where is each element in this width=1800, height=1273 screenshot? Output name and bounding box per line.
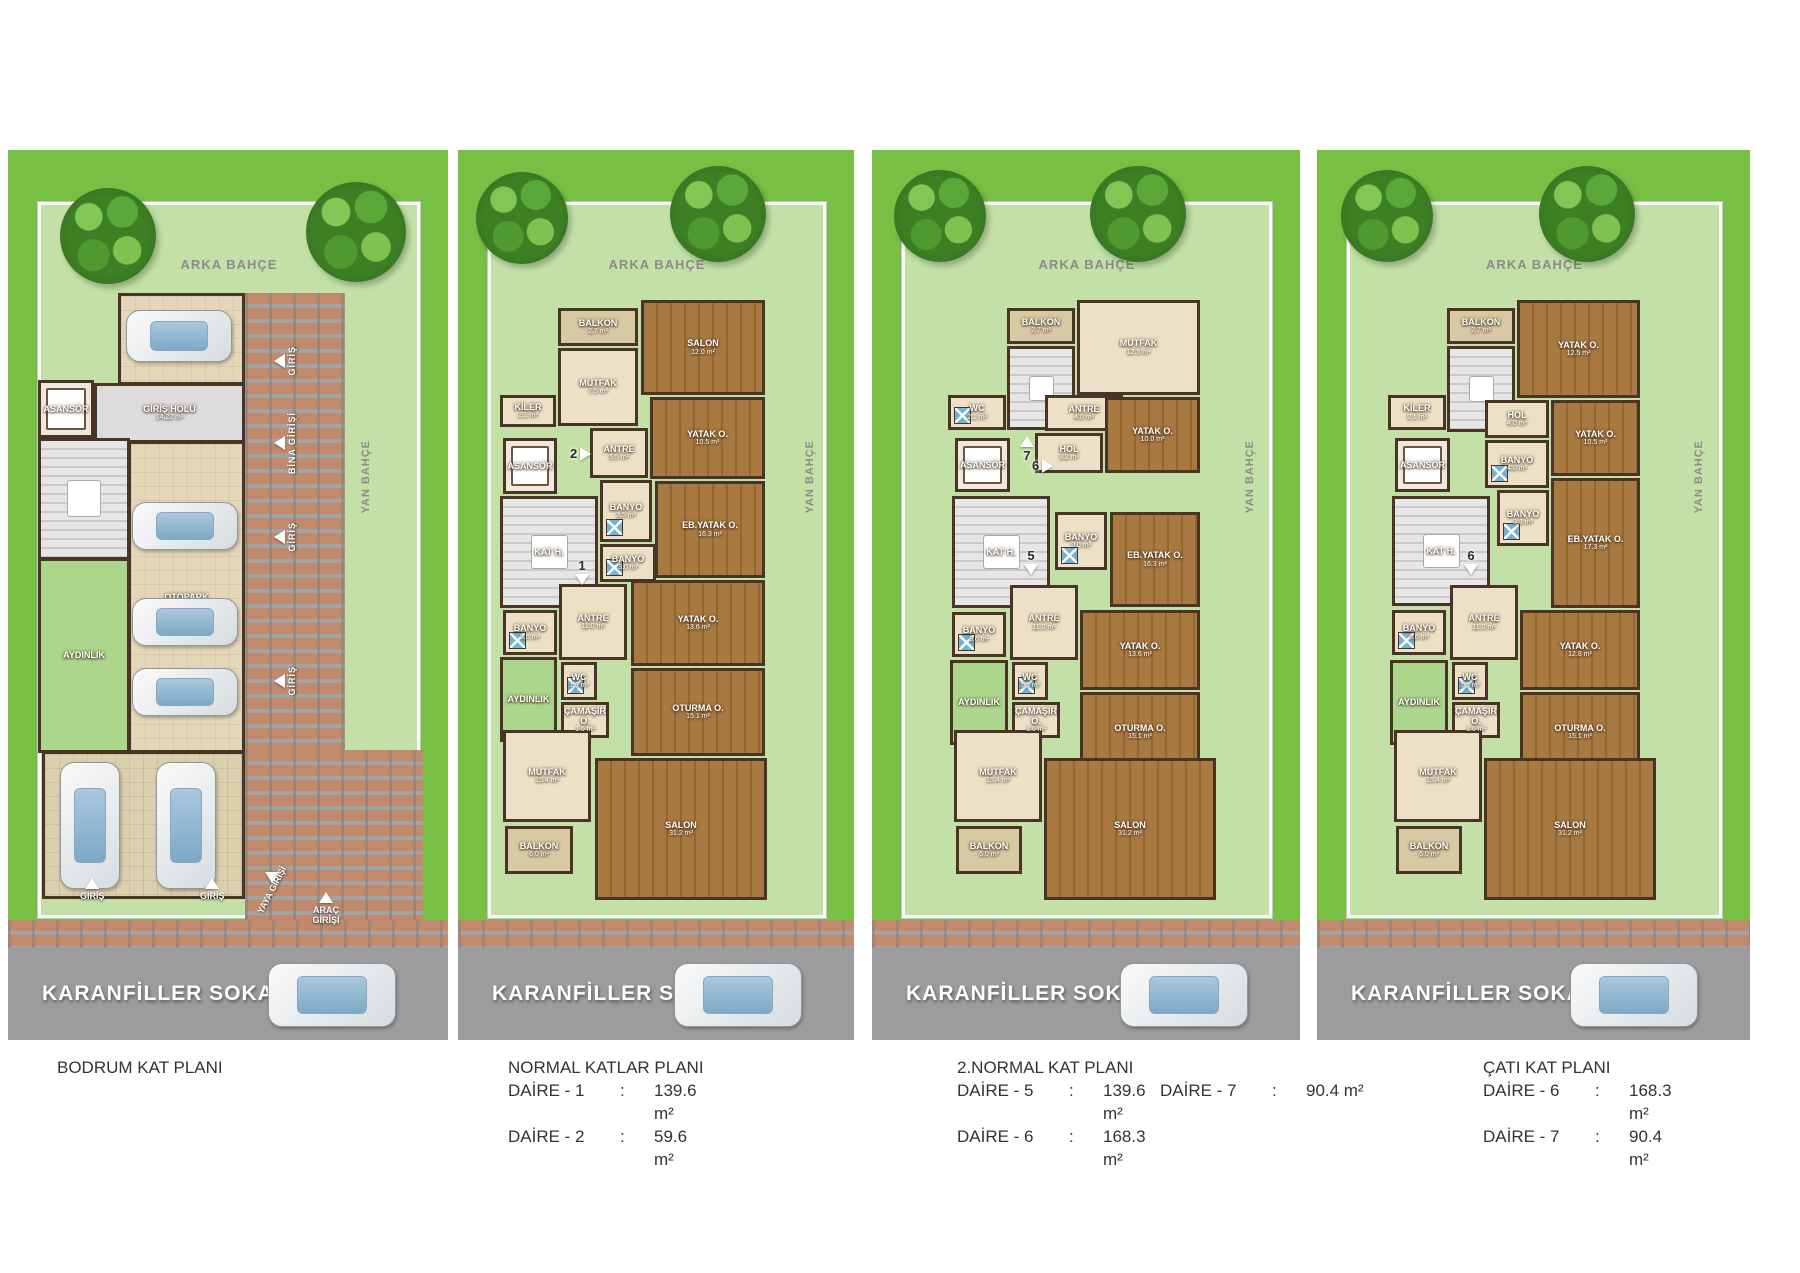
- room-ki-ler: KİLER2.1 m²: [1388, 395, 1446, 430]
- room-label: KİLER2.1 m²: [503, 398, 553, 424]
- apartment-number-label: 2: [570, 446, 577, 461]
- room-label: BALKON2.7 m²: [561, 311, 635, 343]
- street-name-label: KARANFİLLER SOKAK: [906, 982, 1154, 1006]
- marker-yan-bah-e: YAN BAHÇE: [804, 440, 816, 513]
- marker-gi-ri: GİRİŞ: [274, 522, 297, 552]
- room-label: ÇAMAŞIR O.1.6 m²: [564, 705, 606, 735]
- room-label: EB.YATAK O.17.3 m²: [1554, 481, 1637, 605]
- colon: :: [1272, 1079, 1306, 1102]
- room-banyo: BANYO3.3 m²: [1497, 490, 1549, 546]
- room-label: YATAK O.13.6 m²: [1083, 613, 1197, 687]
- apartment-area: 139.6 m²: [1103, 1079, 1152, 1125]
- back-garden-label: ARKA BAHÇE: [905, 257, 1269, 272]
- room-mutfak: MUTFAK7.5 m²: [558, 348, 638, 426]
- apartment-name: DAİRE - 6: [957, 1125, 1069, 1171]
- room-antre: ANTRE5.5 m²: [590, 428, 648, 478]
- room-label: BANYO3.5 m²: [603, 483, 649, 539]
- brick-walkway: [872, 920, 1300, 948]
- room-aydinlik: AYDINLIK: [38, 558, 130, 753]
- room-mutfak: MUTFAK12.5 m²: [1077, 300, 1200, 395]
- room-balkon: BALKON6.0 m²: [1396, 826, 1462, 874]
- apartment-number-label: 5: [1027, 548, 1034, 563]
- marker-label: YAN BAHÇE: [1244, 440, 1256, 513]
- room-wc: WC1.5 m²: [1012, 662, 1048, 700]
- room-label: KİLER2.1 m²: [1391, 398, 1443, 427]
- caption-area-row: DAİRE - 1:139.6 m²: [508, 1079, 703, 1125]
- room-label: ASANSÖR: [41, 383, 91, 435]
- caption-title: BODRUM KAT PLANI: [57, 1056, 223, 1079]
- room-label: AYDINLIK: [41, 561, 127, 750]
- tree: [60, 188, 156, 284]
- tree: [476, 172, 568, 264]
- room-label: WC2.1 m²: [951, 398, 1003, 427]
- apartment-number-label: 7: [1023, 448, 1030, 463]
- room-wc: WC2.1 m²: [948, 395, 1006, 430]
- apartment-name: DAİRE - 5: [957, 1079, 1069, 1125]
- caption-area-row: DAİRE - 7:90.4 m²: [1483, 1125, 1678, 1171]
- tree: [1090, 166, 1186, 262]
- room-oturma-o: OTURMA O.15.1 m²: [1080, 692, 1200, 772]
- floor-plan-cati-kat: ARKA BAHÇEBALKON2.7 m²YATAK O.12.5 m²KİL…: [1317, 150, 1750, 1040]
- caption-areas: DAİRE - 1:139.6 m²DAİRE - 2:59.6 m²: [508, 1079, 704, 1171]
- tree: [894, 170, 986, 262]
- caption-column-2: DAİRE - 7:90.4 m²: [1160, 1079, 1364, 1102]
- room-label: YATAK O.12.8 m²: [1523, 613, 1637, 687]
- room-balkon: BALKON6.0 m²: [956, 826, 1022, 874]
- left-arrow-icon: [274, 530, 285, 544]
- apartment-area: 59.6 m²: [654, 1125, 703, 1171]
- room-label: MUTFAK7.5 m²: [561, 351, 635, 423]
- room-wc: WC1.9 m²: [561, 662, 597, 700]
- room-label: ANTRE11.0 m²: [562, 587, 624, 657]
- street-band: KARANFİLLER SOKAK: [458, 948, 854, 1040]
- room-yatak-o: YATAK O.13.6 m²: [631, 580, 765, 666]
- car-cabin: [170, 788, 203, 863]
- room-yatak-o: YATAK O.10.5 m²: [650, 397, 765, 479]
- room-label: ÇAMAŞIR O.1.6 m²: [1455, 705, 1497, 735]
- caption-title: 2.NORMAL KAT PLANI: [957, 1056, 1364, 1079]
- room-label: WC1.5 m²: [1015, 665, 1045, 697]
- marker-yaya-gi-ri-i: YAYA GİRİŞİ: [246, 872, 298, 895]
- room-salon: SALON31.2 m²: [595, 758, 767, 900]
- up-arrow-icon: [85, 878, 99, 889]
- caption-area-row: DAİRE - 6:168.3 m²: [1483, 1079, 1678, 1125]
- room-banyo: BANYO3.6 m²: [1392, 610, 1446, 655]
- apartment-name: DAİRE - 6: [1483, 1079, 1595, 1125]
- room-ki-ler: KİLER2.1 m²: [500, 395, 556, 427]
- caption-area-row: DAİRE - 2:59.6 m²: [508, 1125, 703, 1171]
- apartment-name: DAİRE - 1: [508, 1079, 620, 1125]
- floor-plan-ikinci-normal-kat: ARKA BAHÇEBALKON2.7 m²MUTFAK12.5 m²WC2.1…: [872, 150, 1300, 1040]
- marker-label: GİRİŞ: [287, 522, 297, 552]
- room-label: ASANSÖR: [958, 441, 1007, 489]
- room-gi-ri-hol: GİRİŞ HOLÜ14.22 m²: [94, 383, 245, 443]
- room-label: YATAK O.10.5 m²: [653, 400, 762, 476]
- tree: [1341, 170, 1433, 262]
- room-oturma-o: OTURMA O.15.1 m²: [1520, 692, 1640, 772]
- marker-gi-ri: GİRİŞ: [274, 666, 297, 696]
- room-asans-r: ASANSÖR: [1395, 438, 1450, 492]
- room-label: MUTFAK12.5 m²: [1080, 303, 1197, 392]
- colon: :: [1069, 1125, 1103, 1171]
- room-wc: WC1.5 m²: [1452, 662, 1488, 700]
- room-label: SALON31.2 m²: [1047, 761, 1213, 897]
- caption-title: ÇATI KAT PLANI: [1483, 1056, 1678, 1079]
- colon: :: [1595, 1125, 1629, 1171]
- caption-areas: DAİRE - 6:168.3 m²DAİRE - 7:90.4 m²: [1483, 1079, 1678, 1171]
- room-mutfak: MUTFAK15.4 m²: [503, 730, 591, 822]
- room-label: ANTRE11.0 m²: [1453, 588, 1515, 657]
- apartment-number-2: 2: [570, 446, 591, 461]
- car-top-view: [132, 668, 238, 716]
- apartment-number-5: 5: [1024, 548, 1038, 575]
- car-cabin: [156, 678, 214, 706]
- room-label: WC1.9 m²: [564, 665, 594, 697]
- room-label: BANYO3.6 m²: [955, 615, 1003, 654]
- room-label: AYDINLIK: [953, 663, 1005, 742]
- caption-area-row: DAİRE - 7:90.4 m²: [1160, 1079, 1364, 1102]
- caption-area-row: DAİRE - 6:168.3 m²: [957, 1125, 1152, 1171]
- marker-label: YAN BAHÇE: [360, 440, 372, 513]
- room-balkon: BALKON2.7 m²: [1007, 308, 1075, 344]
- car-top-view: [132, 502, 238, 550]
- up-arrow-icon: [1020, 436, 1034, 447]
- room-asans-r: ASANSÖR: [503, 438, 557, 494]
- caption-normal-katlar: NORMAL KATLAR PLANIDAİRE - 1:139.6 m²DAİ…: [508, 1056, 704, 1171]
- room-label: BANYO3.0 m²: [1058, 515, 1104, 567]
- room-label: BALKON2.7 m²: [1450, 311, 1512, 341]
- marker-label: GİRİŞ: [287, 346, 297, 376]
- tree: [1539, 166, 1635, 262]
- colon: :: [1595, 1079, 1629, 1125]
- room-hol: HOL4.0 m²: [1485, 400, 1549, 438]
- room-label: MUTFAK15.4 m²: [957, 733, 1039, 819]
- apartment-area: 90.4 m²: [1306, 1079, 1364, 1102]
- room-label: ÇAMAŞIR O.1.6 m²: [1015, 705, 1057, 735]
- room-label: AYDINLIK: [1393, 663, 1445, 742]
- apartment-area: 139.6 m²: [654, 1079, 703, 1125]
- car-top-view: [60, 762, 120, 889]
- room-label: ANTRE5.5 m²: [593, 431, 645, 475]
- apartment-number-6: 6: [1464, 548, 1478, 575]
- room-asans-r: ASANSÖR: [955, 438, 1010, 492]
- room-aydinlik: AYDINLIK: [500, 657, 557, 742]
- apartment-area: 90.4 m²: [1629, 1125, 1678, 1171]
- car-top-view: [156, 762, 216, 889]
- room-label: BANYO4.0 m²: [1488, 443, 1546, 485]
- street-band: KARANFİLLER SOKAK: [1317, 948, 1750, 1040]
- car-top-view: [1570, 963, 1698, 1027]
- marker-bi-na-gi-ri-i: BİNA GİRİŞİ: [274, 412, 297, 474]
- room-label: MUTFAK15.4 m²: [1397, 733, 1479, 819]
- left-arrow-icon: [274, 354, 285, 368]
- caption-column-1: DAİRE - 1:139.6 m²DAİRE - 2:59.6 m²: [508, 1079, 703, 1171]
- right-arrow-icon: [1042, 459, 1053, 473]
- room-yatak-o: YATAK O.13.6 m²: [1080, 610, 1200, 690]
- room-eb-yatak-o: EB.YATAK O.16.3 m²: [1110, 512, 1200, 607]
- car-cabin: [156, 608, 214, 636]
- room-antre: ANTRE11.0 m²: [559, 584, 627, 660]
- room-label: MUTFAK15.4 m²: [506, 733, 588, 819]
- apartment-name: DAİRE - 7: [1483, 1125, 1595, 1171]
- street-band: KARANFİLLER SOKAK: [872, 948, 1300, 1040]
- apartment-area: 168.3 m²: [1629, 1079, 1678, 1125]
- left-arrow-icon: [274, 436, 285, 450]
- marker-gi-ri: GİRİŞ: [200, 878, 225, 901]
- room-label: BALKON6.0 m²: [1399, 829, 1459, 871]
- room-eb-yatak-o: EB.YATAK O.16.3 m²: [655, 481, 765, 578]
- room-antre: ANTRE11.0 m²: [1010, 585, 1078, 660]
- right-arrow-icon: [580, 447, 591, 461]
- room-label: SALON31.2 m²: [598, 761, 764, 897]
- car-top-view: [126, 310, 232, 362]
- colon: :: [620, 1125, 654, 1171]
- car-cabin: [703, 976, 774, 1013]
- back-garden-label: ARKA BAHÇE: [1350, 257, 1719, 272]
- room-eb-yatak-o: EB.YATAK O.17.3 m²: [1551, 478, 1640, 608]
- room-mutfak: MUTFAK15.4 m²: [1394, 730, 1482, 822]
- room-label: GİRİŞ HOLÜ14.22 m²: [97, 386, 242, 440]
- caption-cati-kat: ÇATI KAT PLANIDAİRE - 6:168.3 m²DAİRE - …: [1483, 1056, 1678, 1171]
- room-banyo: BANYO3.5 m²: [600, 480, 652, 542]
- marker-label: BİNA GİRİŞİ: [287, 412, 297, 474]
- tree: [306, 182, 406, 282]
- apartment-name: DAİRE - 7: [1160, 1079, 1272, 1102]
- room-label: BANYO3.0 m²: [603, 547, 653, 579]
- down-arrow-icon: [1024, 564, 1038, 575]
- room-label: OTURMA O.15.1 m²: [1083, 695, 1197, 769]
- marker-label: GİRİŞ: [200, 891, 225, 901]
- car-top-view: [674, 963, 802, 1027]
- apartment-number-label: 1: [578, 558, 585, 573]
- car-top-view: [1120, 963, 1248, 1027]
- room-label: BANYO3.6 m²: [1395, 613, 1443, 652]
- car-cabin: [1149, 976, 1220, 1013]
- room-asans-r: ASANSÖR: [38, 380, 94, 438]
- room-label: YATAK O.10.0 m²: [1108, 400, 1197, 470]
- marker-yan-bah-e: YAN BAHÇE: [360, 440, 372, 513]
- marker-yan-bah-e: YAN BAHÇE: [1693, 440, 1705, 513]
- room-label: BALKON6.0 m²: [959, 829, 1019, 871]
- room-label: BALKON2.7 m²: [1010, 311, 1072, 341]
- marker-label: YAN BAHÇE: [804, 440, 816, 513]
- room-label: AYDINLIK: [503, 660, 554, 739]
- marker-gi-ri: GİRİŞ: [274, 346, 297, 376]
- brick-walkway: [458, 920, 854, 948]
- caption-ikinci-normal-kat: 2.NORMAL KAT PLANIDAİRE - 5:139.6 m²DAİR…: [957, 1056, 1364, 1171]
- apartment-number-6: 6: [1032, 458, 1053, 473]
- room-banyo: BANYO3.6 m²: [503, 610, 557, 655]
- apartment-number-label: 6: [1032, 458, 1039, 473]
- car-cabin: [156, 512, 214, 540]
- room-salon: SALON31.2 m²: [1484, 758, 1656, 900]
- brick-walkway: [1317, 920, 1750, 948]
- room-oturma-o: OTURMA O.15.1 m²: [631, 668, 765, 756]
- caption-area-row: DAİRE - 5:139.6 m²: [957, 1079, 1152, 1125]
- left-arrow-icon: [274, 674, 285, 688]
- apartment-name: DAİRE - 2: [508, 1125, 620, 1171]
- room-balkon: BALKON6.0 m²: [505, 826, 573, 874]
- marker-label: GİRİŞ: [80, 891, 105, 901]
- room-balkon: BALKON2.7 m²: [1447, 308, 1515, 344]
- room-label: SALON12.0 m²: [644, 303, 762, 392]
- marker-label: ARAÇ GİRİŞİ: [306, 905, 346, 925]
- up-arrow-icon: [205, 878, 219, 889]
- car-cabin: [297, 976, 368, 1013]
- room-salon: SALON31.2 m²: [1044, 758, 1216, 900]
- room-banyo: BANYO3.0 m²: [1055, 512, 1107, 570]
- marker-yan-bah-e: YAN BAHÇE: [1244, 440, 1256, 513]
- room-yatak-o: YATAK O.10.0 m²: [1105, 397, 1200, 473]
- car-top-view: [268, 963, 396, 1027]
- room-balkon: BALKON2.7 m²: [558, 308, 638, 346]
- room-label: BANYO3.6 m²: [506, 613, 554, 652]
- marker-label: YAN BAHÇE: [1693, 440, 1705, 513]
- caption-column-1: DAİRE - 6:168.3 m²DAİRE - 7:90.4 m²: [1483, 1079, 1678, 1171]
- car-cabin: [150, 321, 208, 351]
- marker-gi-ri: GİRİŞ: [80, 878, 105, 901]
- car-top-view: [132, 598, 238, 646]
- tree: [670, 166, 766, 262]
- room-label: WC1.5 m²: [1455, 665, 1485, 697]
- room-banyo: BANYO3.0 m²: [600, 544, 656, 582]
- room-label: YATAK O.12.5 m²: [1520, 303, 1637, 395]
- down-arrow-icon: [1464, 564, 1478, 575]
- apartment-number-label: 6: [1467, 548, 1474, 563]
- down-arrow-icon: [575, 574, 589, 585]
- colon: :: [1069, 1079, 1103, 1125]
- caption-column-1: DAİRE - 5:139.6 m²DAİRE - 6:168.3 m²: [957, 1079, 1152, 1171]
- street-name-label: KARANFİLLER SOKAK: [42, 982, 290, 1006]
- room-label: EB.YATAK O.16.3 m²: [658, 484, 762, 575]
- up-arrow-icon: [319, 892, 333, 903]
- floor-plan-bodrum-kat: ARKA BAHÇEOTOPARKASANSÖRGİRİŞ HOLÜ14.22 …: [8, 150, 448, 1040]
- room-label: YATAK O.13.6 m²: [634, 583, 762, 663]
- room-label: ASANSÖR: [506, 441, 554, 491]
- colon: :: [620, 1079, 654, 1125]
- room-label: EB.YATAK O.16.3 m²: [1113, 515, 1197, 604]
- room-mutfak: MUTFAK15.4 m²: [954, 730, 1042, 822]
- car-cabin: [1599, 976, 1670, 1013]
- room-label: HOL4.0 m²: [1488, 403, 1546, 435]
- brick-walkway: [8, 920, 448, 948]
- room-label: YATAK O.10.5 m²: [1554, 403, 1637, 473]
- room-label: OTURMA O.15.1 m²: [1523, 695, 1637, 769]
- room-yatak-o: YATAK O.10.5 m²: [1551, 400, 1640, 476]
- room-label: SALON31.2 m²: [1487, 761, 1653, 897]
- room-label: ASANSÖR: [1398, 441, 1447, 489]
- street-name-label: KARANFİLLER SOKAK: [1351, 982, 1599, 1006]
- marker-label: GİRİŞ: [287, 666, 297, 696]
- room-salon: SALON12.0 m²: [641, 300, 765, 395]
- apartment-area: 168.3 m²: [1103, 1125, 1152, 1171]
- street-band: KARANFİLLER SOKAK: [8, 948, 448, 1040]
- floor-plan-normal-katlar: ARKA BAHÇEBALKON2.7 m²SALON12.0 m²MUTFAK…: [458, 150, 854, 1040]
- room-stairs: [38, 438, 130, 560]
- room-antre: ANTRE11.0 m²: [1450, 585, 1518, 660]
- room-yatak-o: YATAK O.12.8 m²: [1520, 610, 1640, 690]
- room-label: BANYO3.3 m²: [1500, 493, 1546, 543]
- car-cabin: [74, 788, 107, 863]
- caption-bodrum-kat: BODRUM KAT PLANI: [57, 1056, 223, 1079]
- site-plan-canvas: ARKA BAHÇEOTOPARKASANSÖRGİRİŞ HOLÜ14.22 …: [0, 0, 1800, 1273]
- room-yatak-o: YATAK O.12.5 m²: [1517, 300, 1640, 398]
- room-label: BALKON6.0 m²: [508, 829, 570, 871]
- caption-areas: DAİRE - 5:139.6 m²DAİRE - 6:168.3 m²DAİR…: [957, 1079, 1364, 1171]
- room-banyo: BANYO3.6 m²: [952, 612, 1006, 657]
- marker-ara-gi-ri-i: ARAÇ GİRİŞİ: [306, 892, 346, 925]
- apartment-number-1: 1: [575, 558, 589, 585]
- caption-title: NORMAL KATLAR PLANI: [508, 1056, 704, 1079]
- room-banyo: BANYO4.0 m²: [1485, 440, 1549, 488]
- room-label: ANTRE11.0 m²: [1013, 588, 1075, 657]
- room-label: OTURMA O.15.1 m²: [634, 671, 762, 753]
